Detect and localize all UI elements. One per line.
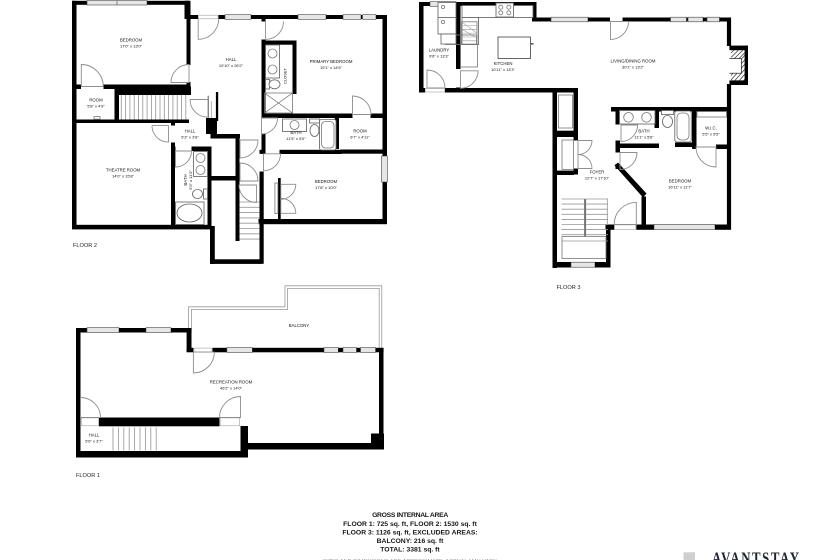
svg-text:11'1" x 5'6": 11'1" x 5'6" xyxy=(634,135,654,140)
svg-text:TOTAL: 3381 sq. ft: TOTAL: 3381 sq. ft xyxy=(380,547,440,554)
svg-text:PRIMARY BEDROOM: PRIMARY BEDROOM xyxy=(310,59,353,64)
svg-text:46'2" x 14'0": 46'2" x 14'0" xyxy=(220,386,243,391)
svg-text:BEDROOM: BEDROOM xyxy=(120,38,143,43)
svg-text:BATH: BATH xyxy=(638,129,649,134)
svg-text:ROOM: ROOM xyxy=(353,129,367,134)
svg-text:BEDROOM: BEDROOM xyxy=(669,179,692,184)
svg-text:KITCHEN: KITCHEN xyxy=(494,61,513,66)
svg-text:14'0" x 15'8": 14'0" x 15'8" xyxy=(112,174,135,179)
svg-text:30'1" x 13'2": 30'1" x 13'2" xyxy=(622,65,645,70)
svg-text:6'7" x 4'11": 6'7" x 4'11" xyxy=(350,135,370,140)
svg-text:19'1" x 14'6": 19'1" x 14'6" xyxy=(320,65,343,70)
svg-text:CLOSET: CLOSET xyxy=(283,67,288,84)
svg-text:FOYER: FOYER xyxy=(590,170,605,175)
svg-text:BALCONY: BALCONY xyxy=(289,323,310,328)
svg-text:17'0" x 13'0": 17'0" x 13'0" xyxy=(120,44,143,49)
svg-text:LAUNDRY: LAUNDRY xyxy=(429,48,450,53)
svg-text:HALL: HALL xyxy=(185,129,196,134)
svg-text:ROOM: ROOM xyxy=(89,98,103,103)
svg-text:HALL: HALL xyxy=(226,57,237,62)
svg-text:FLOOR 1: FLOOR 1 xyxy=(76,473,100,479)
svg-text:HALL: HALL xyxy=(89,433,100,438)
svg-text:BATH: BATH xyxy=(290,130,301,135)
svg-text:GROSS INTERNAL AREA: GROSS INTERNAL AREA xyxy=(372,512,448,519)
svg-text:FLOOR 2: FLOOR 2 xyxy=(73,243,97,249)
svg-text:16'11" x 11'7": 16'11" x 11'7" xyxy=(668,185,692,190)
svg-text:AVANTSTAY: AVANTSTAY xyxy=(712,549,801,560)
svg-text:FLOOR 3: 1126 sq. ft, EXCLUDED: FLOOR 3: 1126 sq. ft, EXCLUDED AREAS: xyxy=(342,529,477,536)
svg-text:5'8" x 4'9": 5'8" x 4'9" xyxy=(87,104,105,109)
svg-text:FLOOR 3: FLOOR 3 xyxy=(557,285,581,291)
svg-text:17'8" x 10'0": 17'8" x 10'0" xyxy=(315,185,338,190)
svg-text:FLOOR 1: 725 sq. ft, FLOOR 2:: FLOOR 1: 725 sq. ft, FLOOR 2: 1530 sq. f… xyxy=(343,521,477,528)
svg-text:11'5" x 5'0": 11'5" x 5'0" xyxy=(286,136,306,141)
svg-text:12'7" x 17'10": 12'7" x 17'10" xyxy=(585,176,610,181)
svg-text:5'3" x 3'8": 5'3" x 3'8" xyxy=(181,135,199,140)
svg-text:RECREATION ROOM: RECREATION ROOM xyxy=(210,380,253,385)
svg-text:THEATRE ROOM: THEATRE ROOM xyxy=(106,168,141,173)
svg-text:10'10" x 26'2": 10'10" x 26'2" xyxy=(219,63,244,68)
svg-text:5'6" x 3'7": 5'6" x 3'7" xyxy=(85,439,103,444)
svg-text:5'0" x 11'0": 5'0" x 11'0" xyxy=(188,170,193,190)
svg-text:10'11" x 13'3": 10'11" x 13'3" xyxy=(491,67,515,72)
svg-text:BEDROOM: BEDROOM xyxy=(315,179,338,184)
svg-text:W.I.C.: W.I.C. xyxy=(705,126,717,131)
svg-text:LIVING/DINING ROOM: LIVING/DINING ROOM xyxy=(611,59,656,64)
svg-text:9'6" x 13'3": 9'6" x 13'3" xyxy=(429,54,449,59)
svg-text:BALCONY: 216 sq. ft: BALCONY: 216 sq. ft xyxy=(377,538,444,545)
svg-text:5'5" x 5'5": 5'5" x 5'5" xyxy=(702,132,720,137)
